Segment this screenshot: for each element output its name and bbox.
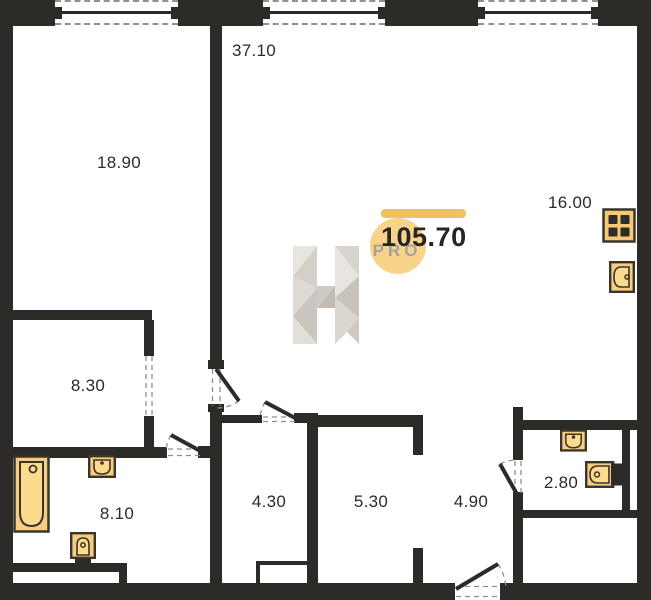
wall-bedroom-room-divider xyxy=(13,310,152,320)
toilet-icon xyxy=(70,532,96,569)
floor-plan: PRO 105.70 xyxy=(0,0,651,600)
wc-toilet-icon xyxy=(585,461,623,488)
room-label-wc: 2.80 xyxy=(544,473,578,493)
room-label-room830: 8.30 xyxy=(71,376,105,396)
window-stub xyxy=(55,7,62,19)
room-label-hall-b: 5.30 xyxy=(354,492,388,512)
wall-room530-right-lower xyxy=(413,548,423,583)
window-stub xyxy=(263,7,270,19)
duct-bathroom xyxy=(13,572,119,583)
bathtub-icon xyxy=(13,455,50,533)
window-dash xyxy=(478,0,598,2)
wall-divider-lower xyxy=(210,407,222,583)
window-stub xyxy=(171,7,178,19)
door-entrance xyxy=(456,564,506,597)
window-glass-line xyxy=(484,11,592,14)
wall-rooms-divider xyxy=(307,423,318,583)
wall-wc-right xyxy=(622,430,630,510)
room-label-kitchen: 16.00 xyxy=(548,193,592,213)
wall-bottom-right xyxy=(500,583,651,600)
wall-wc-bottom xyxy=(513,510,651,518)
wall-bottom-left xyxy=(0,583,455,600)
window-stub xyxy=(478,7,485,19)
stove-icon xyxy=(602,208,636,243)
window-stub xyxy=(378,7,385,19)
window-1 xyxy=(55,0,178,26)
wc-sink-icon xyxy=(560,429,587,452)
window-glass-line xyxy=(269,11,379,14)
sink-icon xyxy=(88,455,116,478)
window-3 xyxy=(478,0,598,26)
room-label-bathroom: 8.10 xyxy=(100,504,134,524)
kitchen-sink-icon xyxy=(609,261,635,293)
wall-hall-top-a xyxy=(222,415,262,423)
room-label-living: 37.10 xyxy=(232,41,276,61)
wall-divider-upper xyxy=(210,26,222,368)
door-wc xyxy=(500,460,521,496)
wall-corridor-right-upper xyxy=(513,407,523,460)
window-2 xyxy=(263,0,385,26)
wall-room530-top xyxy=(310,415,423,427)
h-logo-watermark-icon xyxy=(293,246,359,344)
wall-room830-right-lower xyxy=(144,416,154,447)
window-stub xyxy=(591,7,598,19)
wall-door-hinge-nub xyxy=(208,404,224,412)
wall-top-pier-b xyxy=(385,0,478,26)
wall-left xyxy=(0,0,13,600)
total-area-value: 105.70 xyxy=(381,222,467,253)
window-dash xyxy=(263,0,385,2)
opening-room830 xyxy=(146,356,152,416)
wall-top-pier-a xyxy=(178,0,263,26)
room-label-corridor: 4.90 xyxy=(454,492,488,512)
wall-door-hinge-nub xyxy=(208,360,224,369)
room-label-bedroom: 18.90 xyxy=(97,153,141,173)
window-dash xyxy=(478,23,598,25)
door-living-hall xyxy=(213,369,240,408)
door-hall-a xyxy=(260,402,297,422)
window-dash xyxy=(55,23,178,25)
wall-room830-right-upper xyxy=(144,320,154,356)
window-dash xyxy=(55,0,178,2)
window-dash xyxy=(263,23,385,25)
accent-bar xyxy=(381,209,466,218)
wall-bathroom-top-right xyxy=(198,446,222,458)
room-label-hall-a: 4.30 xyxy=(252,492,286,512)
wall-corridor-right-lower xyxy=(513,492,523,583)
wall-bathroom-step xyxy=(119,572,127,583)
wall-room530-right-upper xyxy=(413,415,423,455)
duct-hall xyxy=(260,565,307,583)
window-glass-line xyxy=(61,11,172,14)
